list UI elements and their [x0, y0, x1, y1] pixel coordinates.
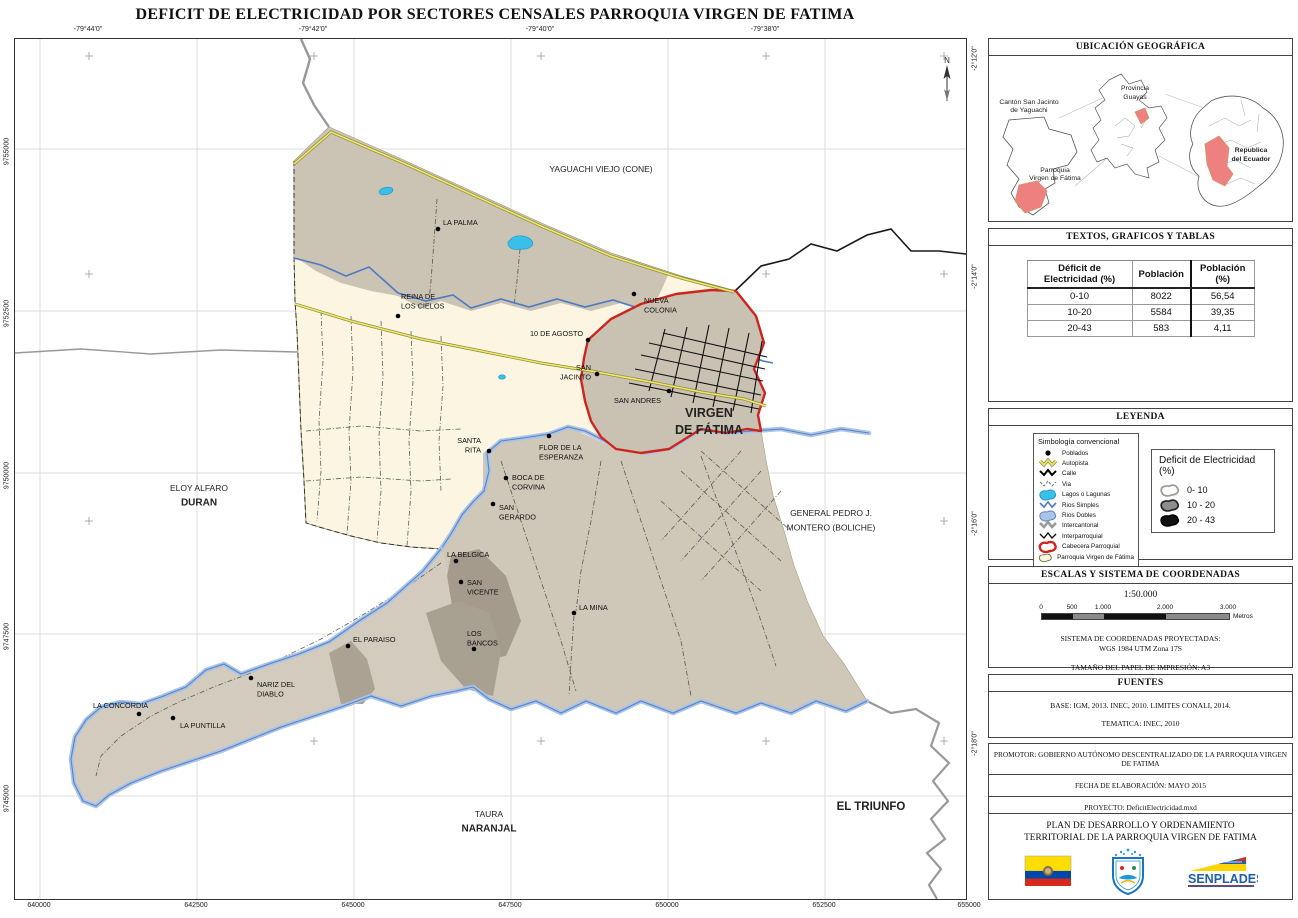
town-label: NUEVA	[644, 296, 669, 305]
svg-text:de Yaguachi: de Yaguachi	[1010, 107, 1048, 114]
town-label: FLOR DE LA	[539, 443, 582, 452]
graticule-cross	[940, 737, 948, 745]
svg-text:Cantón San Jacinto: Cantón San Jacinto	[999, 99, 1059, 106]
town-label: ESPERANZA	[539, 453, 583, 462]
town-label: SAN	[467, 578, 482, 587]
parroquia-crest-icon	[1105, 846, 1151, 896]
svg-text:Guayas: Guayas	[1123, 94, 1147, 101]
legend-item-label: Calle	[1062, 470, 1076, 477]
legend-item-label: Autopista	[1062, 460, 1088, 467]
town-dot-icon	[436, 227, 441, 232]
legend-item-label: Rios Simples	[1062, 502, 1099, 509]
svg-text:Virgen de Fátima: Virgen de Fátima	[1029, 175, 1081, 182]
town-dot-icon	[396, 314, 401, 319]
table-cell: 0-10	[1027, 288, 1132, 305]
town-dot-icon	[487, 449, 492, 454]
town-dot-icon	[249, 676, 254, 681]
svg-text:SENPLADES: SENPLADES	[1188, 872, 1258, 886]
town-label: LA PUNTILLA	[180, 721, 226, 730]
legend-item-label: Intercantonal	[1062, 522, 1098, 529]
main-map: LA PALMAREINA DELOS CIELOSNUEVACOLONIA10…	[14, 38, 967, 900]
axis-label-bottom: 652500	[812, 902, 835, 909]
info-row: FECHA DE ELABORACIÓN: MAYO 2015	[988, 774, 1293, 797]
inset-maps: Cantón San Jacinto de Yaguachi Parroquia…	[989, 56, 1292, 220]
deficit-swatch-icon	[1159, 513, 1181, 527]
area-label: EL TRIUNFO	[837, 801, 906, 813]
deficit-legend-item: 0- 10	[1159, 482, 1267, 497]
axis-label-right: -2°12'0"	[972, 44, 979, 74]
area-label: TAURA	[475, 809, 504, 819]
table-header: Población	[1132, 261, 1191, 289]
axis-label-left: 9755000	[4, 137, 11, 167]
parroquia-polygon	[71, 127, 867, 806]
legend-item-label: Parroquia Virgen de Fátima	[1057, 554, 1134, 561]
svg-text:Provincia: Provincia	[1121, 85, 1149, 92]
panel-fuentes-title: FUENTES	[989, 675, 1292, 692]
graticule-cross	[940, 517, 948, 525]
panel-textos: TEXTOS, GRAFICOS Y TABLAS Déficit de Ele…	[988, 228, 1293, 402]
town-dot-icon	[632, 292, 637, 297]
town-label: NARIZ DEL	[257, 680, 295, 689]
deficit-10-20-north	[294, 127, 669, 311]
deficit-10-20-tail	[71, 549, 473, 806]
axis-label-bottom: 655000	[957, 902, 980, 909]
table-cell: 20-43	[1027, 321, 1132, 337]
panel-escalas-title: ESCALAS Y SISTEMA DE COORDENADAS	[989, 567, 1292, 584]
deficit-legend: Deficit de Electricidad (%) 0- 1010 - 20…	[1151, 449, 1275, 533]
deficit-legend-label: 0- 10	[1187, 485, 1208, 495]
table-cell: 4,11	[1191, 321, 1254, 337]
deficit-legend-item: 10 - 20	[1159, 497, 1267, 512]
table-cell: 583	[1132, 321, 1191, 337]
deficit-legend-title: Deficit de Electricidad (%)	[1159, 455, 1267, 477]
scale-bar-label: 3.000	[1220, 604, 1236, 611]
scale-ratio: 1:50.000	[989, 590, 1292, 600]
senplades-logo-icon: SENPLADES	[1184, 853, 1258, 889]
town-dot-icon	[547, 434, 552, 439]
fuentes-base: BASE: IGM, 2013. INEC, 2010. LIMITES CON…	[989, 701, 1292, 710]
town-label: CORVINA	[512, 483, 545, 492]
town-label: COLONIA	[644, 306, 677, 315]
graticule-cross	[85, 270, 93, 278]
symbology-title: Simbología convencional	[1038, 437, 1134, 446]
town-label: BANCOS	[467, 639, 498, 648]
axis-label-bottom: 642500	[184, 902, 207, 909]
axis-label-right: -2°16'0"	[972, 509, 979, 539]
town-dot-icon	[504, 476, 509, 481]
town-label: SANTA	[457, 436, 481, 445]
axis-label-bottom: 647500	[498, 902, 521, 909]
crs-line1: SISTEMA DE COORDENADAS PROYECTADAS:	[989, 634, 1292, 644]
table-row: 10-20558439,35	[1027, 305, 1254, 321]
graticule-cross	[762, 52, 770, 60]
town-label: SAN	[499, 503, 514, 512]
axis-label-left: 9752500	[4, 299, 11, 329]
town-dot-icon	[586, 338, 591, 343]
graticule-cross	[537, 737, 545, 745]
deficit-10-20-south	[441, 427, 867, 713]
panel-proyecto: PROMOTOR: GOBIERNO AUTÓNOMO DESCENTRALIZ…	[988, 744, 1293, 808]
scale-bar-segment	[1104, 614, 1166, 619]
panel-fuentes: FUENTES BASE: IGM, 2013. INEC, 2010. LIM…	[988, 674, 1293, 738]
axis-label-left: 9745000	[4, 784, 11, 814]
poly-parroquia-icon	[1038, 551, 1053, 564]
paper-size: TAMAÑO DEL PAPEL DE IMPRESIÓN: A3	[989, 663, 1292, 672]
deficit-swatch-icon	[1159, 498, 1181, 512]
north-arrow-icon: N	[944, 56, 951, 101]
town-label: RITA	[465, 446, 481, 455]
table-row: 0-10802256,54	[1027, 288, 1254, 305]
town-dot-icon	[572, 611, 577, 616]
axis-label-bottom: 650000	[655, 902, 678, 909]
ecuador-flag-icon	[1024, 855, 1072, 887]
graticule-cross	[940, 270, 948, 278]
table-cell: 56,54	[1191, 288, 1254, 305]
table-cell: 39,35	[1191, 305, 1254, 321]
info-row: PROMOTOR: GOBIERNO AUTÓNOMO DESCENTRALIZ…	[988, 743, 1293, 775]
town-dot-icon	[595, 372, 600, 377]
svg-text:del Ecuador: del Ecuador	[1232, 156, 1271, 163]
axis-label-top: -79°44'0"	[74, 26, 102, 33]
scale-bar-label: 1.000	[1095, 604, 1111, 611]
town-dot-icon	[491, 502, 496, 507]
scale-bar-segment	[1042, 614, 1073, 619]
svg-text:Republica: Republica	[1235, 147, 1268, 154]
town-label: LA PALMA	[443, 218, 478, 227]
panel-leyenda-title: LEYENDA	[989, 409, 1292, 426]
town-label: REINA DE	[401, 292, 435, 301]
panel-escalas: ESCALAS Y SISTEMA DE COORDENADAS 1:50.00…	[988, 566, 1293, 668]
scale-bar-segment	[1073, 614, 1104, 619]
graticule-cross	[762, 737, 770, 745]
axis-label-top: -79°38'0"	[751, 26, 779, 33]
area-label: YAGUACHI VIEJO (CONE)	[549, 164, 652, 174]
town-dot-icon	[667, 389, 672, 394]
town-label: LA CONCORDIA	[93, 701, 148, 710]
area-label: GENERAL PEDRO J.	[790, 508, 872, 518]
axis-label-top: -79°42'0"	[299, 26, 327, 33]
scale-bar-label: 2.000	[1157, 604, 1173, 611]
graticule-cross	[537, 52, 545, 60]
panel-plan: PLAN DE DESARROLLO Y ORDENAMIENTO TERRIT…	[988, 813, 1293, 900]
area-label: ELOY ALFARO	[170, 483, 228, 493]
map-canvas: LA PALMAREINA DELOS CIELOSNUEVACOLONIA10…	[15, 39, 966, 899]
area-label: DURAN	[181, 498, 217, 509]
legend-item-label: Poblados	[1062, 450, 1088, 457]
deficit-table: Déficit de Electricidad (%)PoblaciónPobl…	[1027, 260, 1255, 337]
area-label: DE FÁTIMA	[675, 422, 743, 437]
town-label: LA BELGICA	[447, 550, 489, 559]
symbology-legend: Simbología convencional PobladosAutopist…	[1033, 433, 1139, 567]
scale-bar: 05001.0002.0003.000 Metros	[1041, 604, 1244, 628]
table-cell: 5584	[1132, 305, 1191, 321]
scale-bar-segment	[1166, 614, 1229, 619]
panel-ubicacion: UBICACIÓN GEOGRÁFICA Cantón San Ja	[988, 38, 1293, 222]
legend-item-label: Rios Dobles	[1062, 512, 1096, 519]
table-cell: 10-20	[1027, 305, 1132, 321]
graticule-cross	[85, 517, 93, 525]
deficit-legend-label: 10 - 20	[1187, 500, 1215, 510]
town-label: 10 DE AGOSTO	[530, 329, 583, 338]
crs-line2: WGS 1984 UTM Zona 17S	[989, 644, 1292, 654]
town-label: BOCA DE	[512, 473, 545, 482]
town-label: LA MINA	[579, 603, 608, 612]
town-label: DIABLO	[257, 690, 284, 699]
panel-textos-title: TEXTOS, GRAFICOS Y TABLAS	[989, 229, 1292, 246]
table-header: Déficit de Electricidad (%)	[1027, 261, 1132, 289]
axis-label-right: -2°14'0"	[972, 262, 979, 292]
panel-leyenda: LEYENDA Simbología convencional Poblados…	[988, 408, 1293, 560]
area-label: VIRGEN	[685, 406, 733, 420]
scale-bar-label: 500	[1067, 604, 1078, 611]
interparroquial-ne-line	[734, 229, 966, 292]
axis-label-left: 9750000	[4, 461, 11, 491]
deficit-legend-item: 20 - 43	[1159, 512, 1267, 527]
town-dot-icon	[171, 716, 176, 721]
town-label: VICENTE	[467, 588, 499, 597]
town-dot-icon	[346, 644, 351, 649]
area-label: NARANJAL	[462, 824, 517, 835]
axis-label-top: -79°40'0"	[526, 26, 554, 33]
town-label: EL PARAISO	[353, 635, 396, 644]
graticule-cross	[85, 52, 93, 60]
deficit-swatch-icon	[1159, 483, 1181, 497]
legend-item-label: Interparroquial	[1062, 533, 1103, 540]
axis-label-left: 9747500	[4, 622, 11, 652]
table-header: Población (%)	[1191, 261, 1254, 289]
deficit-legend-label: 20 - 43	[1187, 515, 1215, 525]
town-dot-icon	[459, 580, 464, 585]
map-title: DEFICIT DE ELECTRICIDAD POR SECTORES CEN…	[0, 6, 990, 24]
town-label: LOS	[467, 629, 482, 638]
fuentes-tematica: TEMATICA: INEC, 2010	[989, 719, 1292, 728]
town-label: SAN	[576, 363, 591, 372]
town-label: GERARDO	[499, 513, 536, 522]
plan-title: PLAN DE DESARROLLO Y ORDENAMIENTO TERRIT…	[989, 821, 1292, 844]
table-cell: 8022	[1132, 288, 1191, 305]
table-row: 20-435834,11	[1027, 321, 1254, 337]
legend-item-label: Cabecera Parroquial	[1062, 543, 1120, 550]
legend-item-label: Via	[1062, 481, 1071, 488]
axis-label-right: -2°18'0"	[972, 729, 979, 759]
map-layout-page: DEFICIT DE ELECTRICIDAD POR SECTORES CEN…	[0, 0, 1298, 918]
graticule-cross	[762, 270, 770, 278]
legend-item: Parroquia Virgen de Fátima	[1038, 552, 1134, 562]
inset-canton-map	[1003, 117, 1077, 215]
area-label: MONTERO (BOLICHE)	[787, 523, 876, 533]
scale-bar-label: 0	[1039, 604, 1043, 611]
town-dot-icon	[454, 559, 459, 564]
graticule-cross	[310, 737, 318, 745]
scale-unit: Metros	[1233, 613, 1253, 620]
town-label: LOS CIELOS	[401, 302, 445, 311]
axis-label-bottom: 645000	[341, 902, 364, 909]
svg-text:N: N	[944, 56, 950, 65]
legend-item-label: Lagos o Lagunas	[1062, 491, 1110, 498]
svg-text:Parroquia: Parroquia	[1040, 167, 1070, 174]
town-dot-icon	[137, 712, 142, 717]
town-label: SAN ANDRES	[614, 396, 661, 405]
axis-label-bottom: 640000	[27, 902, 50, 909]
panel-ubicacion-title: UBICACIÓN GEOGRÁFICA	[989, 39, 1292, 56]
town-label: JACINTO	[560, 373, 591, 382]
